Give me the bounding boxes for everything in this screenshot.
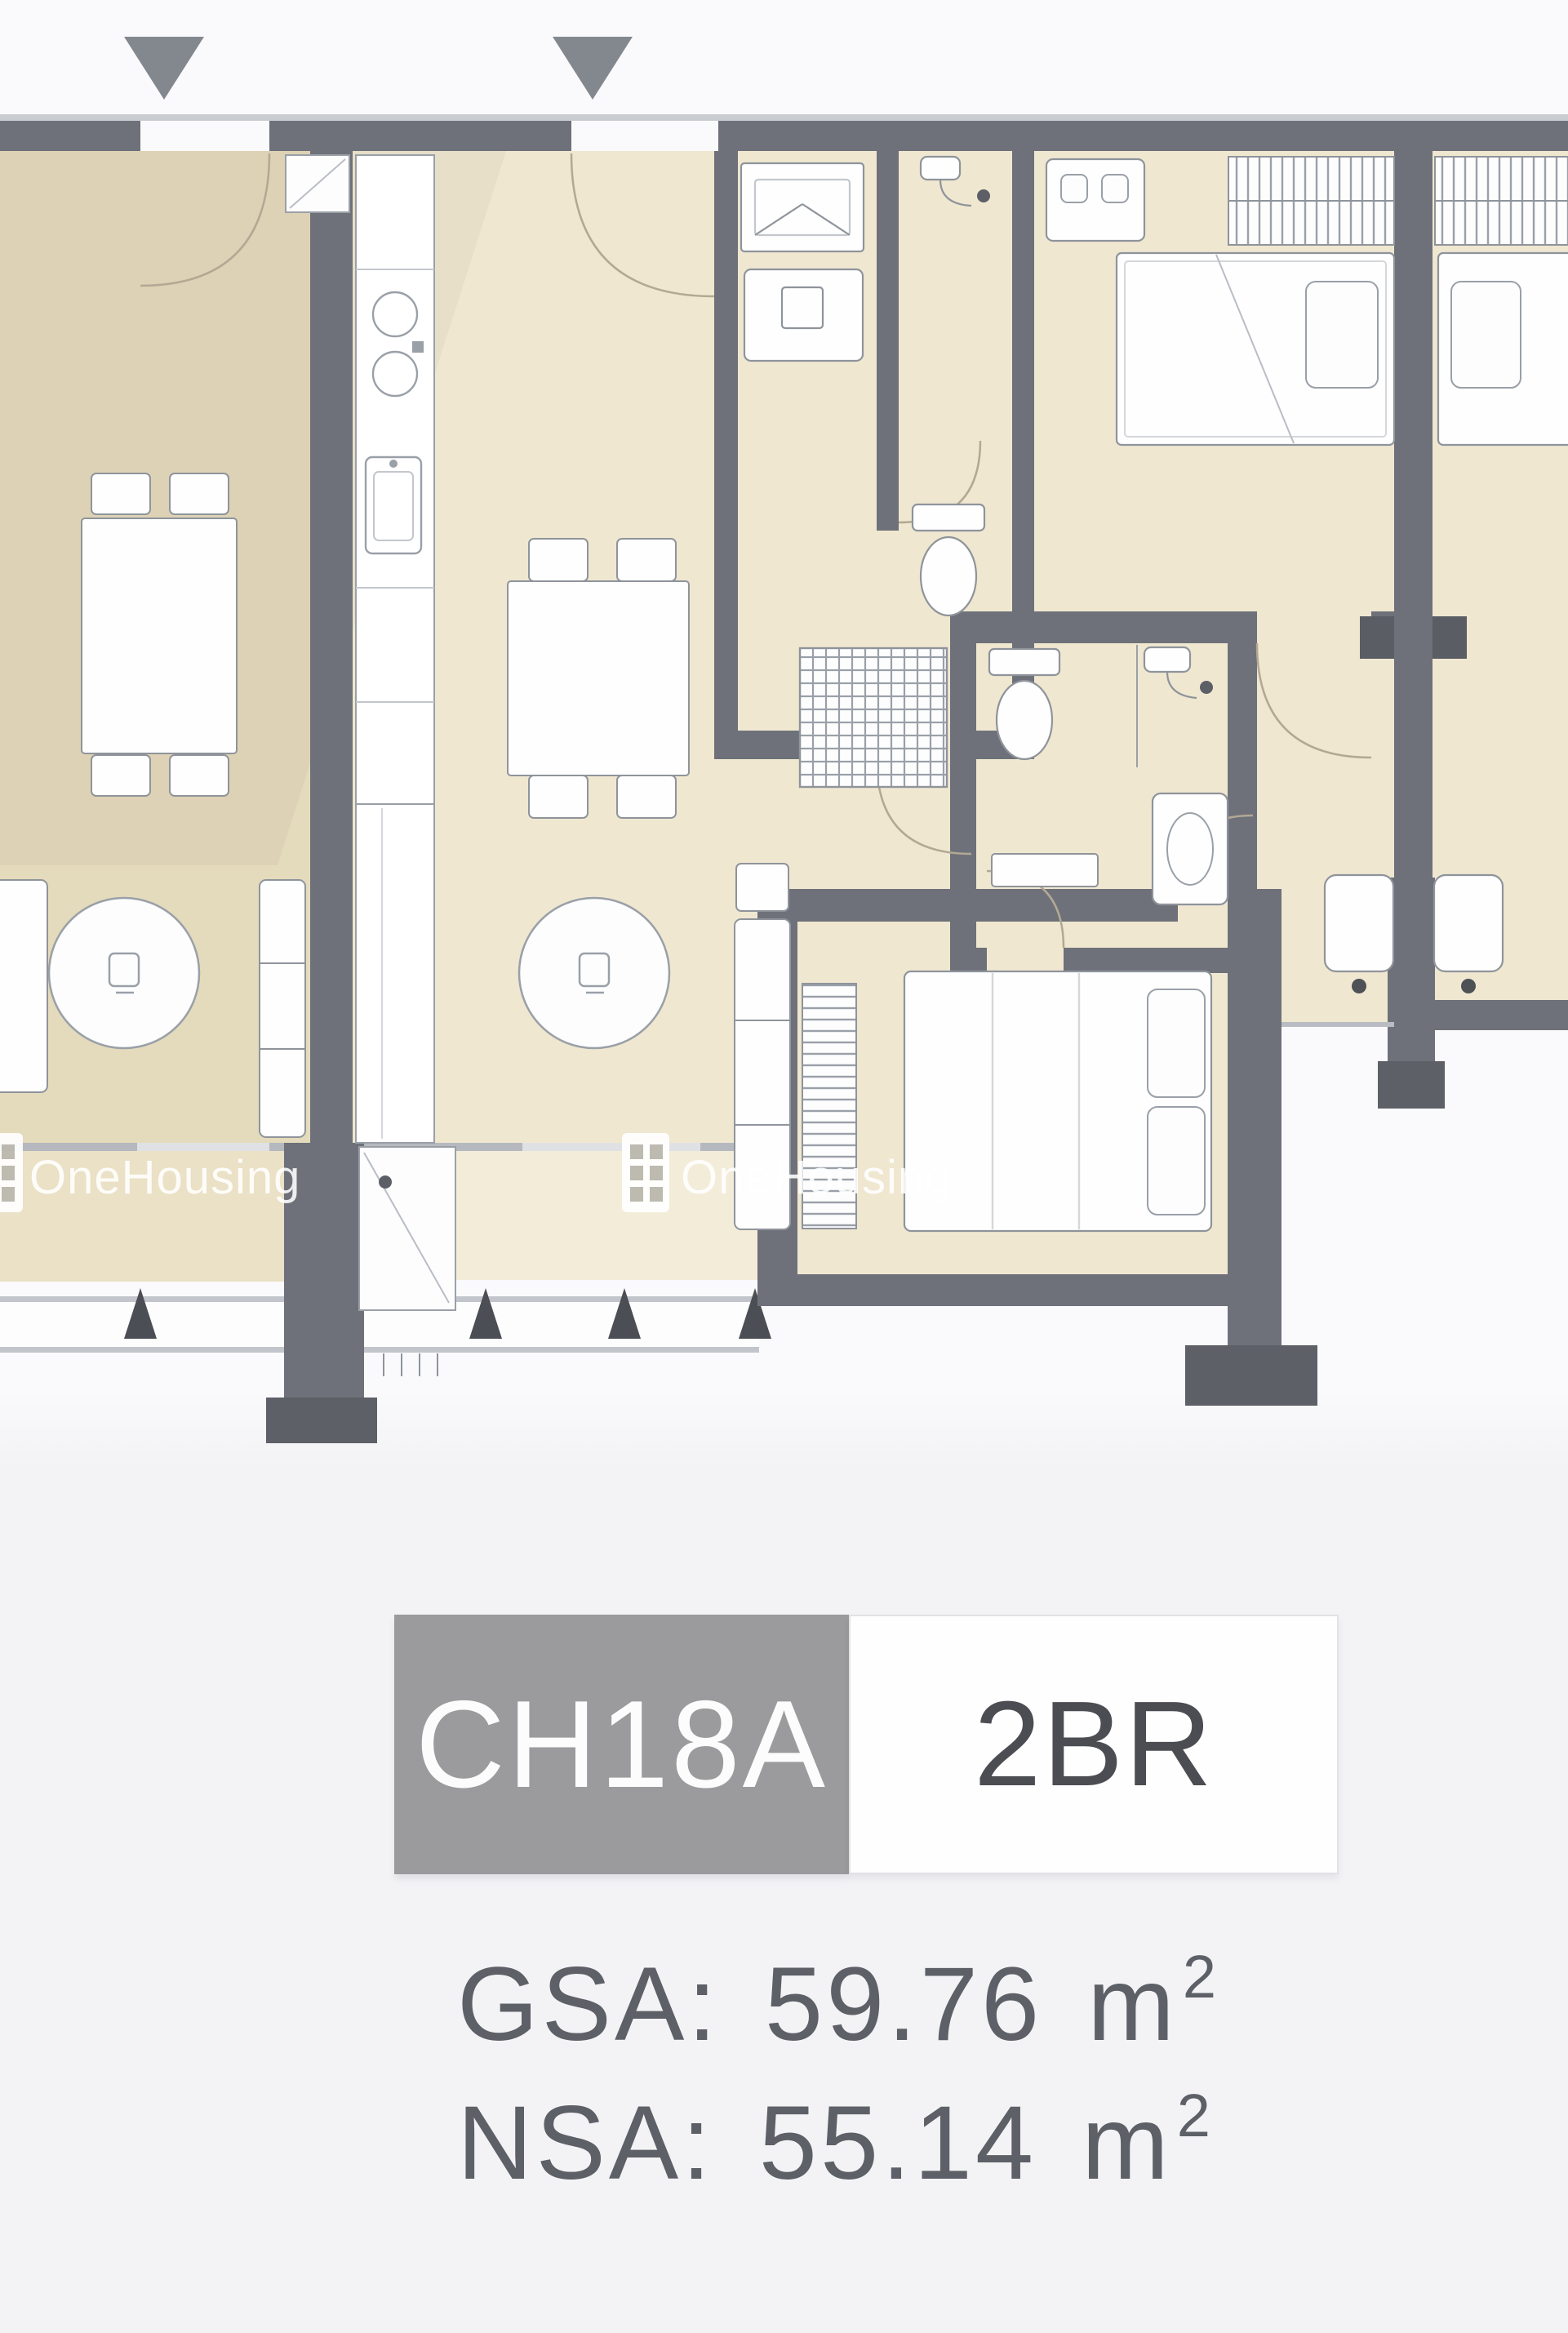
washing-machine-icon bbox=[744, 269, 863, 361]
floorplan-page: OneHousing OneHousing CH18A 2BR GSA: 59.… bbox=[0, 0, 1568, 2333]
door-frame-box bbox=[1360, 616, 1394, 659]
nsa-unit: m2 bbox=[1082, 2083, 1209, 2203]
dining-set bbox=[508, 539, 689, 818]
onehousing-logo-icon bbox=[0, 1133, 23, 1212]
gsa-unit: m2 bbox=[1087, 1944, 1215, 2064]
pillow-icon bbox=[1148, 989, 1205, 1097]
pillow-icon bbox=[1148, 1107, 1205, 1215]
nightstand bbox=[1046, 159, 1144, 241]
pillow-icon bbox=[1451, 282, 1521, 388]
unit-code-badge: CH18A bbox=[394, 1615, 849, 1874]
wardrobe bbox=[1228, 157, 1394, 245]
unit-type-badge: 2BR bbox=[849, 1615, 1339, 1874]
unit-code-text: CH18A bbox=[415, 1673, 828, 1816]
living-round-table bbox=[519, 898, 669, 1048]
pillow-icon bbox=[1306, 282, 1378, 388]
double-bed bbox=[1117, 253, 1394, 445]
bathroom-sink-icon bbox=[741, 163, 864, 251]
gsa-value: 59.76 bbox=[765, 1944, 1042, 2064]
washbasin-icon bbox=[1153, 793, 1228, 904]
left-unit-round-table bbox=[49, 898, 199, 1048]
floorplan-image: OneHousing OneHousing bbox=[0, 0, 1568, 1469]
nsa-area-line: NSA: 55.14 m2 bbox=[457, 2083, 1209, 2203]
service-shaft bbox=[286, 155, 349, 212]
nsa-label: NSA: bbox=[457, 2083, 714, 2203]
kitchen-counter bbox=[356, 155, 434, 1143]
plan-background-fade bbox=[0, 1388, 1568, 1469]
door-frame-box bbox=[1433, 616, 1467, 659]
right-unit-bedroom bbox=[1435, 157, 1568, 445]
left-unit-dining-set bbox=[82, 473, 237, 796]
stove-knob-icon bbox=[412, 341, 424, 353]
cabinet bbox=[992, 854, 1098, 887]
watermark-text: OneHousing bbox=[29, 1151, 300, 1204]
hall-closet bbox=[800, 648, 947, 787]
onehousing-logo-icon bbox=[622, 1133, 669, 1212]
nsa-value: 55.14 bbox=[759, 2083, 1037, 2203]
watermark-text: OneHousing bbox=[681, 1151, 952, 1204]
unit-type-text: 2BR bbox=[974, 1675, 1214, 1814]
gsa-label: GSA: bbox=[457, 1944, 720, 2064]
gsa-area-line: GSA: 59.76 m2 bbox=[457, 1944, 1215, 2064]
corridor-floor-edge bbox=[1281, 1022, 1394, 1027]
